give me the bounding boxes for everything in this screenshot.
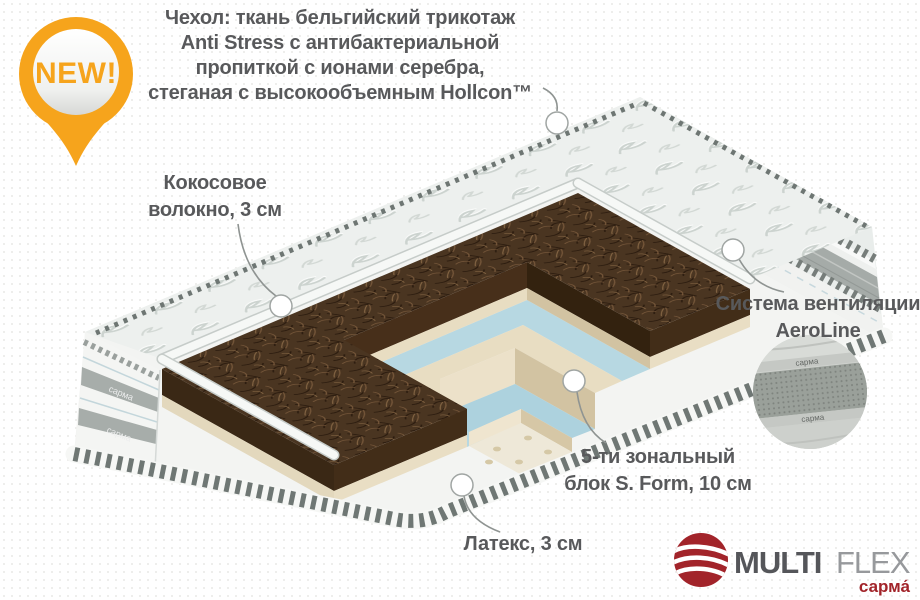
product-diagram: сарма сарма bbox=[0, 0, 920, 600]
ventilation-callout: Система вентиляции AeroLine bbox=[688, 291, 920, 345]
logo-text-secondary: FLEX bbox=[836, 545, 911, 580]
sform-callout: 5-ти зональный блок S. Form, 10 см bbox=[538, 444, 778, 498]
new-badge-label: NEW! bbox=[35, 57, 117, 90]
coconut-callout: Кокосовое волокно, 3 см bbox=[95, 170, 335, 224]
logo-sub-brand: сарма́ bbox=[859, 577, 911, 596]
brand-logo: MULTI FLEX сарма́ bbox=[660, 530, 916, 598]
latex-callout: Латекс, 3 см bbox=[420, 531, 626, 558]
logo-text-primary: MULTI bbox=[734, 545, 821, 580]
cover-callout: Чехол: ткань бельгийский трикотаж Anti S… bbox=[110, 6, 570, 106]
new-badge: NEW! bbox=[8, 8, 148, 178]
